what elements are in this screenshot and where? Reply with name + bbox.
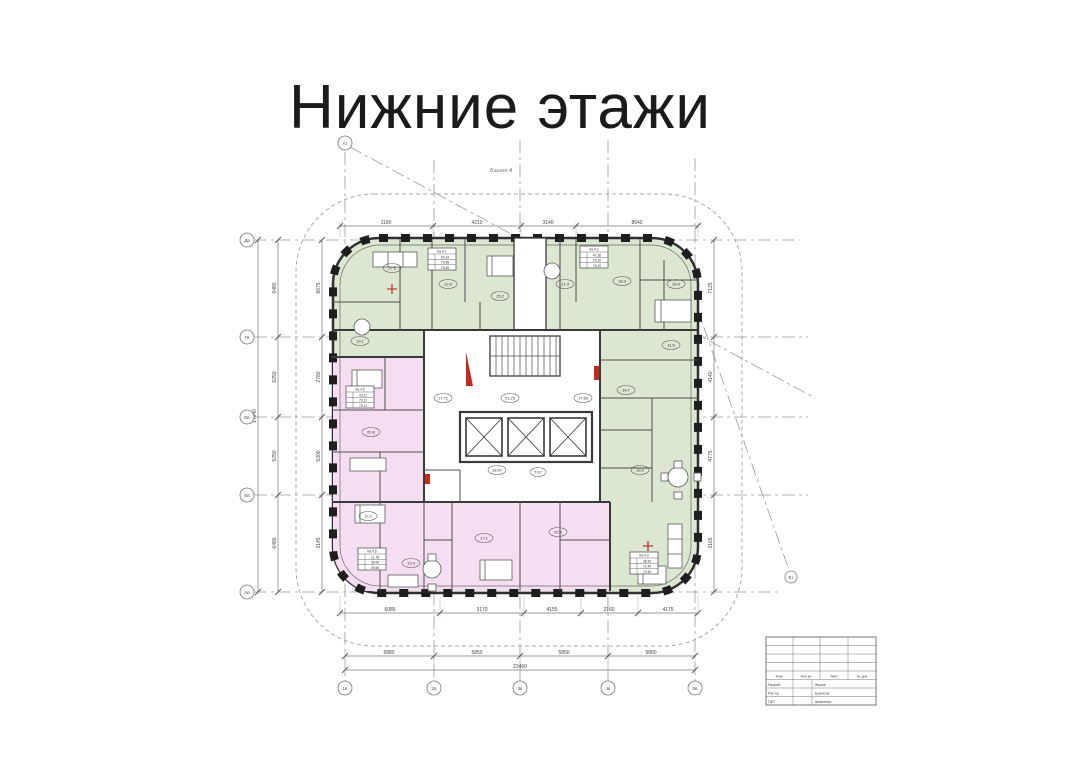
apartment-stamp: Кв.4.1 84.33 76.85 76.85: [428, 248, 456, 270]
svg-text:Ав: Ав: [244, 590, 250, 595]
dim-bottom-outer: 5850: [471, 650, 482, 656]
axis-marker-bottom: 1в: [338, 681, 352, 695]
top-shaft: [514, 238, 546, 330]
round-table: [423, 560, 441, 578]
core-area-label: 18.67: [492, 468, 503, 473]
stamp-value: 47.36: [593, 253, 601, 257]
title-block-role: Разраб.: [768, 683, 781, 687]
title-block-name: Жуков: [815, 683, 826, 687]
svg-text:3в: 3в: [518, 686, 524, 691]
stamp-value: 11.78: [371, 555, 379, 559]
title-block-header: № док: [857, 675, 868, 679]
svg-text:Гв: Гв: [245, 335, 250, 340]
axis-marker-left: Дв: [240, 233, 254, 247]
stamp-title: Кв.4.2: [589, 248, 598, 252]
stamp-value: 39.56: [371, 561, 379, 565]
svg-text:2в: 2в: [432, 686, 438, 691]
room-area: 21.4: [561, 282, 570, 287]
stamp-value: 70.11: [359, 399, 367, 403]
dim-right-inner: 3165: [708, 537, 714, 548]
dim-bottom-inner: 4155: [546, 607, 557, 613]
dim-bottom-inner: 3170: [476, 607, 487, 613]
building: 17.5 12.8 15.2 21.4 18.3 16.4 11.6 14.7 …: [332, 238, 701, 593]
page-title: Нижние этажи: [0, 72, 1000, 143]
apartment-stamp: Кв.4.6 11.78 39.56 39.56: [358, 548, 386, 570]
dim-bottom-outer: 5850: [558, 650, 569, 656]
dim-left-outer: 5250: [272, 371, 278, 382]
dim-bottom-outer: 5880: [645, 650, 656, 656]
stamp-value: 43.11: [359, 393, 367, 397]
dim-bottom-inner: 4175: [662, 607, 673, 613]
core-area-label: 21.25: [505, 396, 516, 401]
bed: [655, 300, 691, 322]
stamp-value: 76.85: [441, 266, 449, 270]
apartment-stamp: Кв.4.2 47.36 76.20 76.20: [580, 246, 608, 268]
dim-left-inner: 8675: [316, 282, 322, 293]
svg-text:4в: 4в: [606, 686, 612, 691]
svg-text:Бв: Бв: [244, 493, 250, 498]
svg-text:Вв: Вв: [244, 415, 250, 420]
axis-marker-bottom: 2в: [427, 681, 441, 695]
round-table: [544, 263, 560, 279]
room-area: 17.5: [388, 266, 397, 271]
axis-marker-left: Вв: [240, 410, 254, 424]
stamp-value: 72.40: [643, 565, 651, 569]
round-table: [668, 467, 688, 487]
stamp-title: Кв.4.1: [437, 250, 446, 254]
sofa: [350, 458, 386, 471]
round-table: [354, 319, 370, 335]
stamp-value: 84.33: [441, 255, 449, 259]
room-area: 19.2: [636, 468, 645, 473]
svg-text:Бт: Бт: [788, 575, 794, 580]
axis-marker-corner-right: Бт: [785, 571, 797, 583]
room-area: 20.8: [367, 430, 376, 435]
dim-bottom-outer: 5880: [383, 650, 394, 656]
dim-top: 1190: [381, 220, 392, 226]
axis-marker-left: Ав: [240, 585, 254, 599]
axis-marker-bottom: 4в: [601, 681, 615, 695]
stamp-value: 76.85: [441, 261, 449, 265]
room-area: 17.1: [480, 536, 489, 541]
svg-text:1в: 1в: [343, 686, 349, 691]
dim-bottom-total: 23460: [513, 664, 527, 670]
dim-top: 4210: [471, 220, 482, 226]
apartment-stamp: Кв.4.5 43.11 70.11 70.11: [346, 386, 374, 408]
room-area: 16.4: [672, 282, 681, 287]
stamp-title: Кв.4.6: [367, 550, 376, 554]
wardrobe: [668, 524, 682, 568]
title-block-role: Рук.пр.: [768, 692, 780, 696]
title-block-name: Шевченко: [815, 700, 832, 704]
dim-left-inner: 3145: [316, 537, 322, 548]
tower-label: Башня А: [490, 168, 513, 174]
axis-marker-bottom: 5в: [688, 681, 702, 695]
axis-marker-left: Гв: [240, 330, 254, 344]
dim-bottom-inner: 6085: [384, 607, 395, 613]
dim-right-inner: 7125: [708, 282, 714, 293]
dim-top: 3140: [542, 220, 553, 226]
room-area: 14.7: [622, 388, 631, 393]
room-area: 12.8: [444, 282, 453, 287]
title-block-role: ГАП: [768, 700, 775, 704]
axis-marker-left: Бв: [240, 488, 254, 502]
room-area: 11.6: [667, 343, 675, 348]
stamp-value: 70.11: [359, 404, 367, 408]
room-area: 15.2: [496, 294, 505, 299]
dim-top: 8640: [631, 220, 642, 226]
dim-left-inner: 2780: [316, 371, 322, 382]
dim-bottom-inner: 2160: [603, 607, 614, 613]
svg-text:5в: 5в: [693, 686, 699, 691]
stamp-value: 76.20: [593, 259, 601, 263]
stamp-value: 72.40: [643, 570, 651, 574]
room-area: 12.2: [364, 514, 373, 519]
axis-marker-bottom: 3в: [513, 681, 527, 695]
title-block: Изм Кол.уч Лист № док Разраб. Жуков Рук.…: [766, 637, 876, 705]
dim-right-inner: 4775: [708, 450, 714, 461]
room-area: 13.1: [356, 339, 365, 344]
stamp-value: 38.36: [643, 559, 651, 563]
room-area: 22.6: [554, 530, 563, 535]
title-block-header: Лист: [830, 675, 838, 679]
slide: Нижние этажи: [0, 0, 1072, 768]
dim-right-inner: 4140: [708, 371, 714, 382]
core-area-label: 17.80: [578, 396, 589, 401]
svg-text:Дв: Дв: [244, 238, 250, 243]
elevators: [460, 412, 592, 462]
stamp-value: 76.20: [593, 264, 601, 268]
dim-left-outer: 5250: [272, 450, 278, 461]
dim-left-inner: 5300: [316, 450, 322, 461]
stamp-title: Кв.4.5: [355, 388, 364, 392]
sofa: [388, 575, 418, 587]
core-area-label: 17.71: [438, 396, 449, 401]
room-area: 15.9: [407, 561, 416, 566]
stamp-value: 39.56: [371, 566, 379, 570]
title-block-header: Кол.уч: [801, 675, 812, 679]
title-block-header: Изм: [776, 675, 783, 679]
core-area-label: 7.67: [534, 470, 543, 475]
stamp-title: Кв.4.3: [639, 554, 648, 558]
apartment-stamp: Кв.4.3 38.36 72.40 72.40: [630, 552, 658, 574]
room-area: 18.3: [618, 279, 627, 284]
dim-left-outer: 6480: [272, 537, 278, 548]
title-block-name: Борисов: [815, 692, 829, 696]
bed: [352, 370, 382, 388]
dim-left-outer: 6480: [272, 282, 278, 293]
bed: [487, 256, 513, 276]
